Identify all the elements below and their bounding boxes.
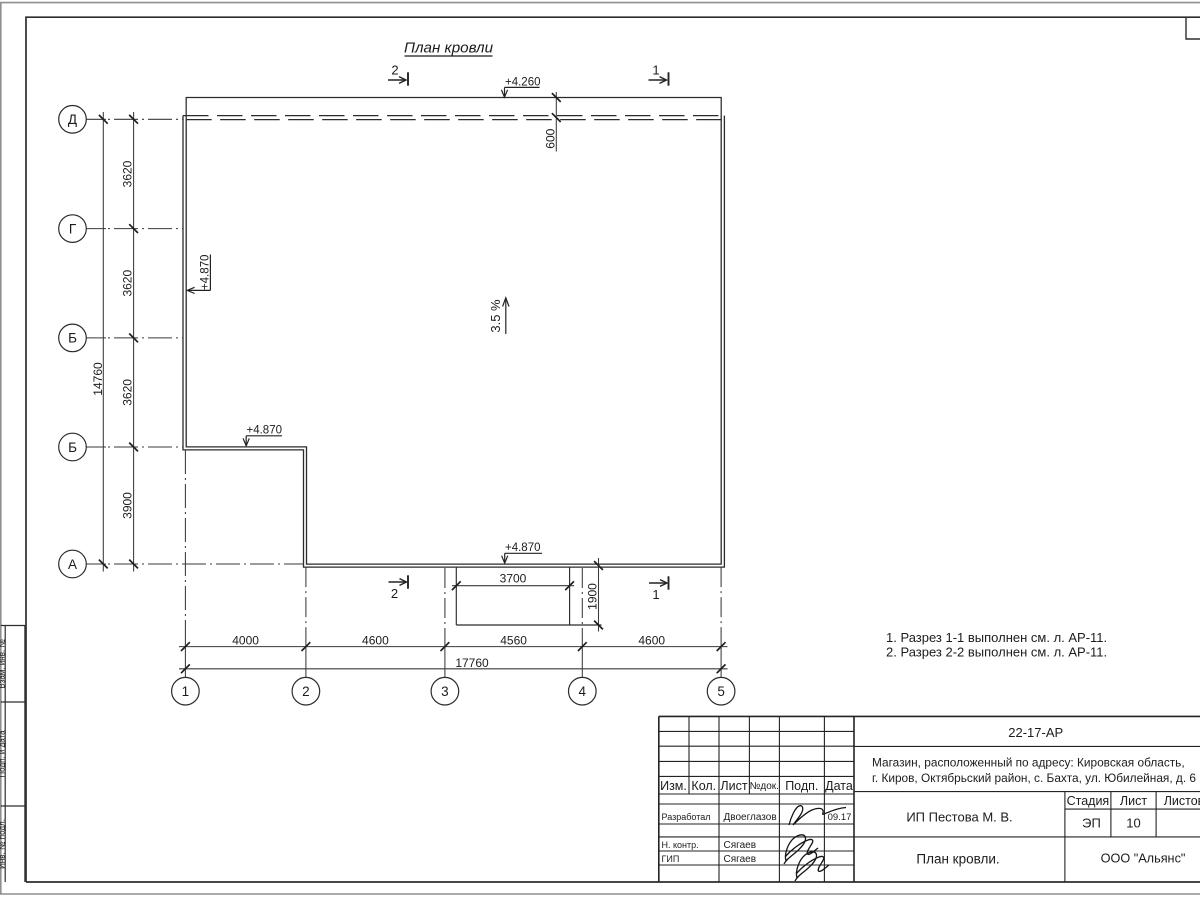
svg-text:Листов: Листов <box>1164 794 1200 808</box>
svg-text:600: 600 <box>544 128 558 148</box>
svg-text:Сягаев: Сягаев <box>724 854 757 865</box>
svg-text:4000: 4000 <box>232 633 259 647</box>
svg-text:ИП Пестова М. В.: ИП Пестова М. В. <box>906 810 1012 825</box>
svg-text:4600: 4600 <box>362 633 389 647</box>
svg-text:Взам. инв. №: Взам. инв. № <box>0 639 6 689</box>
svg-text:5: 5 <box>717 684 725 699</box>
svg-text:10: 10 <box>1126 816 1140 831</box>
svg-text:17760: 17760 <box>455 656 489 670</box>
svg-text:2: 2 <box>391 63 398 78</box>
svg-text:План кровли.: План кровли. <box>916 851 999 866</box>
svg-text:3: 3 <box>441 684 449 699</box>
svg-text:Инв. № подл.: Инв. № подл. <box>0 819 6 869</box>
svg-text:Лист: Лист <box>1120 794 1147 808</box>
svg-text:Сягаев: Сягаев <box>724 840 757 851</box>
svg-text:1: 1 <box>182 684 190 699</box>
svg-text:4560: 4560 <box>500 633 527 647</box>
svg-text:3900: 3900 <box>121 492 135 519</box>
svg-text:Стадия: Стадия <box>1067 794 1110 808</box>
svg-text:3.5 %: 3.5 % <box>488 299 503 333</box>
svg-text:2. Разрез 2-2 выполнен см. л.: 2. Разрез 2-2 выполнен см. л. АР-11. <box>886 644 1107 659</box>
svg-text:Изм.: Изм. <box>660 779 687 793</box>
svg-text:Двоеглазов: Двоеглазов <box>724 812 777 823</box>
svg-text:Разработал: Разработал <box>662 812 711 822</box>
svg-text:ЭП: ЭП <box>1082 816 1101 831</box>
svg-text:1: 1 <box>652 587 659 602</box>
svg-text:г. Киров, Октябрьский район, с: г. Киров, Октябрьский район, с. Бахта, у… <box>872 771 1196 785</box>
svg-text:14760: 14760 <box>91 362 105 396</box>
svg-text:3620: 3620 <box>121 379 135 406</box>
svg-text:Дата: Дата <box>825 779 853 793</box>
svg-text:Г: Г <box>69 221 77 236</box>
svg-text:+4.870: +4.870 <box>505 542 541 554</box>
svg-text:Лист: Лист <box>720 779 747 793</box>
svg-text:А: А <box>68 557 77 572</box>
svg-text:План кровли: План кровли <box>404 40 494 57</box>
svg-text:1900: 1900 <box>585 583 599 610</box>
svg-text:Подп.: Подп. <box>785 779 818 793</box>
svg-text:09.17: 09.17 <box>828 812 852 823</box>
svg-text:ГИП: ГИП <box>662 854 680 864</box>
svg-text:+4.260: +4.260 <box>505 76 541 88</box>
svg-text:Н. контр.: Н. контр. <box>662 840 699 850</box>
svg-text:№док.: №док. <box>750 781 779 792</box>
svg-text:2: 2 <box>302 684 310 699</box>
svg-text:ООО "Альянс": ООО "Альянс" <box>1101 852 1186 866</box>
svg-text:3620: 3620 <box>121 160 135 187</box>
svg-text:1. Разрез 1-1 выполнен см. л.: 1. Разрез 1-1 выполнен см. л. АР-11. <box>886 630 1107 645</box>
svg-text:Кол.: Кол. <box>691 779 716 793</box>
svg-text:4600: 4600 <box>638 633 665 647</box>
svg-text:Б: Б <box>68 440 77 455</box>
svg-text:Магазин, расположенный по адре: Магазин, расположенный по адресу: Кировс… <box>872 755 1185 769</box>
svg-text:3700: 3700 <box>500 572 527 586</box>
svg-text:Б: Б <box>68 331 77 346</box>
svg-text:4: 4 <box>579 684 587 699</box>
svg-text:Подп. и дата: Подп. и дата <box>0 730 6 778</box>
svg-text:3620: 3620 <box>121 270 135 297</box>
svg-text:22-17-АР: 22-17-АР <box>1008 725 1063 740</box>
svg-text:+4.870: +4.870 <box>247 425 283 437</box>
svg-text:2: 2 <box>391 586 398 601</box>
svg-text:1: 1 <box>652 63 659 78</box>
svg-text:+4.870: +4.870 <box>199 255 211 291</box>
svg-text:Д: Д <box>68 112 77 127</box>
